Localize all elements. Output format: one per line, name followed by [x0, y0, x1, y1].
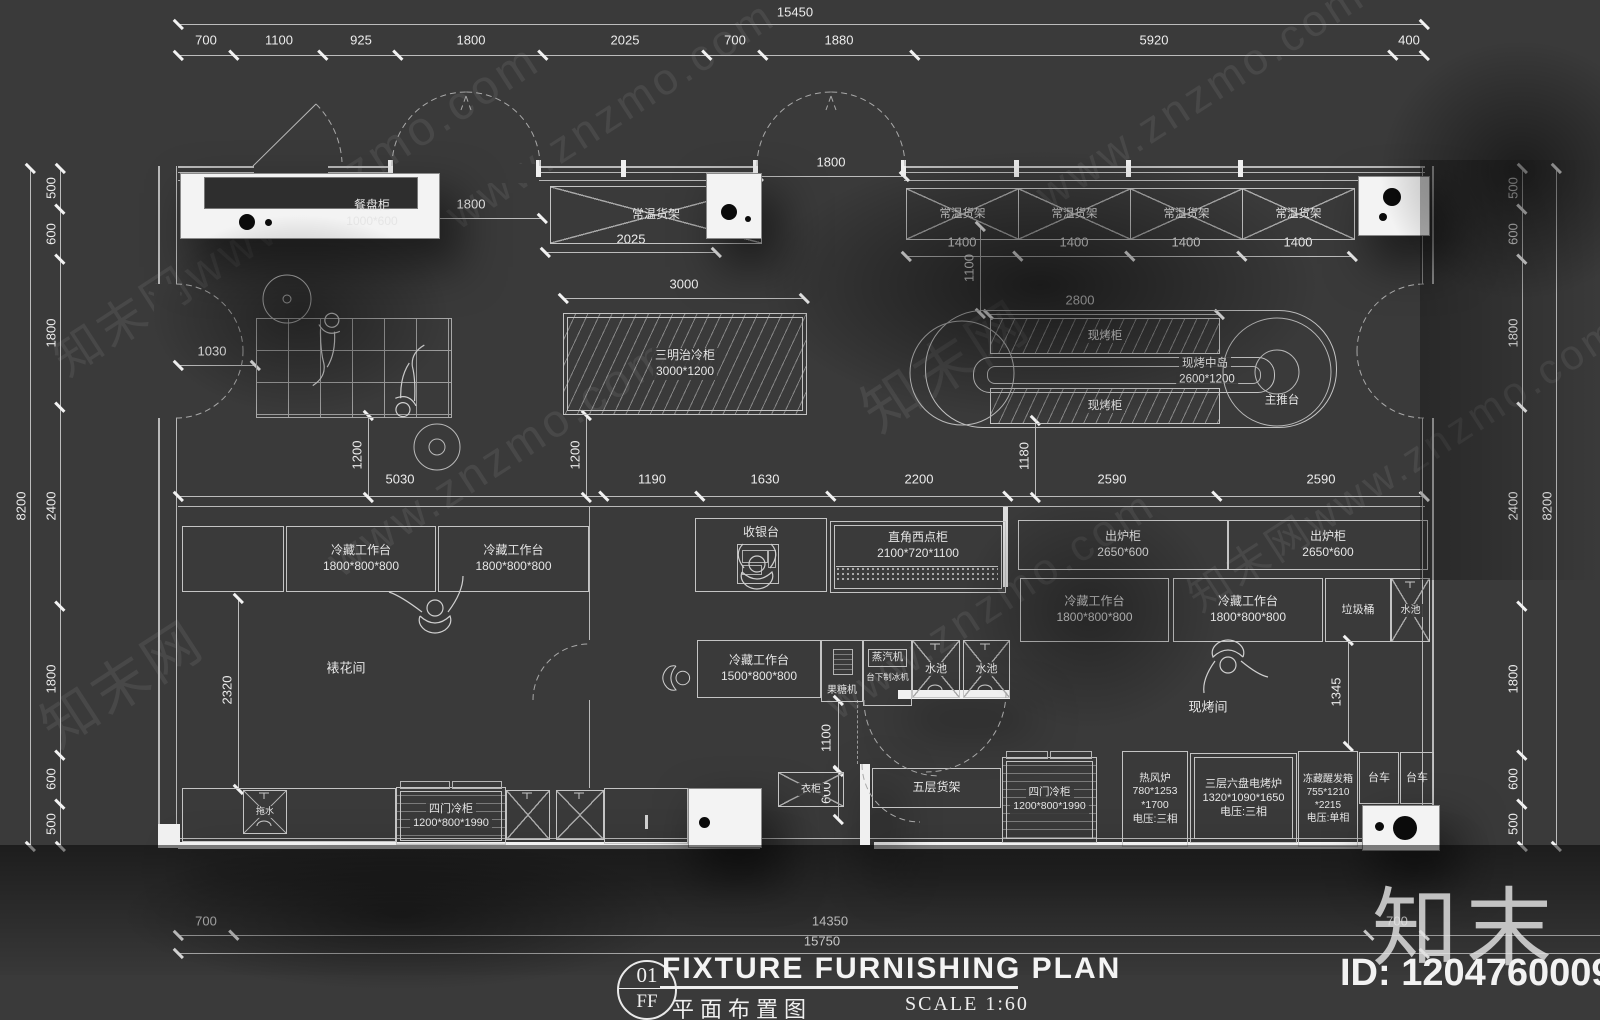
dim-text: 5920 — [1140, 33, 1169, 48]
island-size-label: 2600*1200 — [1176, 372, 1238, 387]
dim-line-right-total — [1556, 168, 1557, 845]
sink: 水池 — [963, 640, 1010, 698]
partition-wall — [589, 507, 590, 640]
sink-dot — [745, 216, 751, 222]
plan-title-cn: 平面布置图 — [672, 992, 812, 1020]
dim-line — [1035, 420, 1036, 496]
wall-left — [158, 166, 160, 845]
fresh-bake-cabinet: 现烤柜 — [990, 388, 1220, 424]
fructose-machine: 果糖机 — [821, 640, 863, 702]
dim-text: 1880 — [825, 33, 854, 48]
dim-text: 5030 — [386, 472, 415, 487]
dim-line — [238, 598, 239, 788]
dim-text: 14350 — [812, 914, 848, 929]
dim-text: 500 — [44, 813, 59, 835]
cold-worktable-1500: 冷藏工作台1500*800*800 — [697, 640, 821, 698]
dim-line-left-segments — [60, 168, 61, 845]
dim-text: 2025 — [611, 33, 640, 48]
pastry-cabinet-band — [836, 566, 998, 580]
dim-text: 2400 — [1506, 492, 1521, 521]
fructose-machine-icon — [833, 649, 853, 675]
dim-text: 1345 — [1329, 678, 1344, 707]
work-counter — [182, 526, 284, 592]
partition-wall-white — [860, 764, 870, 845]
dim-text: 2590 — [1307, 472, 1336, 487]
plate-counter — [180, 173, 440, 239]
dim-text: 2400 — [44, 492, 59, 521]
partition-wall — [589, 700, 590, 788]
dim-line-top-total — [178, 24, 1425, 25]
dim-text: 1030 — [198, 344, 227, 359]
dim-text: 1100 — [265, 33, 293, 48]
proofer-freezer: 冻藏醒发箱755*1210 *2215电压:单相 — [1298, 751, 1358, 847]
dim-text: 600 — [44, 768, 59, 790]
five-layer-shelf: 五层货架 — [872, 768, 1001, 808]
plan-scale: SCALE 1:60 — [905, 993, 1029, 1016]
dim-text: 15750 — [804, 934, 840, 949]
dim-text: 1800 — [1506, 665, 1521, 694]
counter-unit — [688, 788, 762, 848]
sink-dot — [1393, 816, 1417, 840]
dim-text: 2320 — [220, 676, 235, 705]
ambient-shelf: 常温货架 — [906, 188, 1019, 240]
dim-line-top-segments — [178, 55, 1425, 56]
dim-line-bottom-1 — [178, 935, 1425, 936]
dim-line-left-total — [30, 168, 31, 845]
dim-text: 8200 — [1540, 492, 1555, 521]
sink-dot — [1379, 213, 1387, 221]
main-display-label: 主推台 — [1265, 393, 1300, 408]
wall-mullion — [1238, 160, 1243, 177]
watermark-id: ID: 1204760009 — [1340, 952, 1600, 995]
dim-text: 1630 — [751, 472, 780, 487]
sink-dot — [265, 219, 272, 226]
oven-out-cabinet: 出炉柜2650*600 — [1228, 520, 1428, 570]
sink — [506, 790, 550, 840]
four-door-fridge: 四门冷柜 1200*800*1990 — [1002, 757, 1097, 843]
watermark-text: www.znzmo.com — [1027, 0, 1375, 220]
dim-text: 925 — [350, 33, 372, 48]
dim-text: 400 — [1398, 33, 1420, 48]
dim-text: 3000 — [670, 277, 699, 292]
island-label: 现烤中岛 — [1179, 356, 1231, 371]
dim-text: 1800 — [44, 665, 59, 694]
dim-text: 1180 — [1017, 442, 1032, 470]
wardrobe: 衣柜 — [778, 772, 844, 807]
plate-cabinet-label: 餐盘柜1000*600 — [346, 198, 397, 230]
lower-counter — [182, 788, 396, 842]
sofa-block — [256, 318, 452, 418]
dim-line — [758, 176, 905, 177]
dim-text: 600 — [44, 223, 59, 245]
dim-text: 15450 — [777, 5, 813, 20]
ambient-shelf: 常温货架 — [1018, 188, 1131, 240]
dim-text: 700 — [195, 914, 217, 929]
dim-line — [545, 252, 717, 253]
wall-mullion — [536, 160, 541, 177]
sink-dot — [239, 214, 255, 230]
fridge-handle — [1050, 751, 1092, 759]
fridge-handle — [1006, 751, 1048, 759]
dim-line — [178, 365, 256, 366]
cold-worktable: 冷藏工作台1800*800*800 — [286, 526, 436, 592]
sink — [556, 790, 604, 840]
wall-mullion — [1126, 160, 1131, 177]
cold-worktable: 冷藏工作台1800*800*800 — [438, 526, 589, 592]
dim-line-right-segments — [1522, 168, 1523, 845]
wall-mullion — [621, 160, 626, 177]
wall-mullion — [1014, 160, 1019, 177]
counter-unit — [706, 173, 762, 239]
sink-dot — [1383, 188, 1401, 206]
detail-code: FF — [619, 988, 675, 1015]
dim-line — [838, 700, 839, 770]
dim-text: 2200 — [905, 472, 934, 487]
trash-bin: 垃圾桶 — [1325, 578, 1391, 642]
wall-right — [1432, 166, 1434, 845]
partition-wall — [178, 506, 1425, 507]
cold-worktable: 冷藏工作台1800*800*800 — [1173, 578, 1323, 642]
four-door-fridge: 四门冷柜 1200*800*1990 — [396, 787, 506, 845]
dim-line — [368, 415, 369, 496]
title-underline — [660, 986, 1018, 989]
dim-text: 500 — [1506, 177, 1521, 199]
dim-line — [586, 415, 587, 496]
mop-sink: 拖水 — [243, 790, 287, 834]
dim-text: 700 — [195, 33, 217, 48]
counter-unit — [1358, 176, 1430, 236]
dim-text: 600 — [1506, 768, 1521, 790]
dim-text: 2590 — [1098, 472, 1127, 487]
pos-drawer — [742, 565, 762, 575]
electric-deck-oven: 三层六盘电烤炉1320*1090*1650 电压:三相 — [1190, 753, 1297, 843]
fridge-handle — [452, 781, 502, 789]
dim-text: 700 — [724, 33, 746, 48]
dim-line — [563, 298, 805, 299]
dim-text: 1800 — [1506, 319, 1521, 348]
dim-text: 1200 — [568, 441, 583, 470]
shadow — [1380, 40, 1600, 300]
dim-text: 8200 — [14, 492, 29, 521]
partition-dashed — [857, 700, 858, 764]
dim-text: 1800 — [817, 155, 846, 170]
dim-text: 1200 — [350, 441, 365, 470]
sink-dot — [1375, 822, 1384, 831]
sink: 水池 — [912, 640, 960, 698]
trolley: 台车 — [1400, 752, 1434, 804]
dim-text: 1100 — [819, 724, 834, 752]
pastry-cabinet: 直角西点柜2100*720*1100 — [830, 521, 1006, 593]
fresh-bake-cabinet: 现烤柜 — [990, 318, 1220, 354]
door-opening — [154, 284, 180, 418]
pos-screen — [742, 550, 768, 563]
dim-text: 1800 — [457, 197, 486, 212]
trolley: 台车 — [1359, 752, 1399, 804]
hot-air-oven: 热风炉780*1253 *1700电压:三相 — [1122, 751, 1188, 847]
steam-machine: 蒸汽机 台下制冰机 — [863, 640, 912, 706]
door-opening — [1418, 284, 1436, 418]
sink-dot — [721, 204, 737, 220]
dim-text: 1100 — [962, 254, 977, 282]
pos-machine — [737, 544, 779, 584]
room-label-decorating: 裱花间 — [326, 659, 365, 676]
dim-text: 2800 — [1066, 293, 1095, 308]
oven-out-cabinet: 出炉柜2650*600 — [1018, 520, 1228, 570]
detail-number: 01 — [637, 962, 658, 988]
cold-worktable: 冷藏工作台1800*800*800 — [1020, 578, 1169, 642]
sandwich-cooler: 三明治冷柜 3000*1200 — [563, 313, 807, 415]
plan-title-en: FIXTURE FURNISHING PLAN — [662, 952, 1121, 986]
dim-text: 1800 — [44, 319, 59, 348]
pos-keys — [768, 550, 776, 568]
counter-unit — [1362, 805, 1440, 851]
lower-counter — [604, 788, 688, 844]
dim-text: 600 — [1506, 223, 1521, 245]
sink-dot — [699, 817, 710, 828]
faucet-icon — [645, 815, 648, 829]
wall-corner — [158, 824, 180, 848]
sink: 水池 — [1391, 578, 1430, 642]
ambient-shelf: 常温货架 — [1130, 188, 1243, 240]
dim-line — [1348, 640, 1349, 745]
dim-text: 500 — [44, 177, 59, 199]
wall-left-line — [176, 166, 177, 845]
fridge-handle — [400, 781, 450, 789]
room-label-baking: 现烤间 — [1188, 698, 1227, 715]
dim-text: 1190 — [638, 472, 666, 487]
dim-text: 500 — [1506, 813, 1521, 835]
dim-text: 1800 — [457, 33, 486, 48]
ambient-shelf: 常温货架 — [1242, 188, 1355, 240]
floor-plan-canvas: 知末网www.znzmo.com www.znzmo.com www.znzmo… — [0, 0, 1600, 1020]
